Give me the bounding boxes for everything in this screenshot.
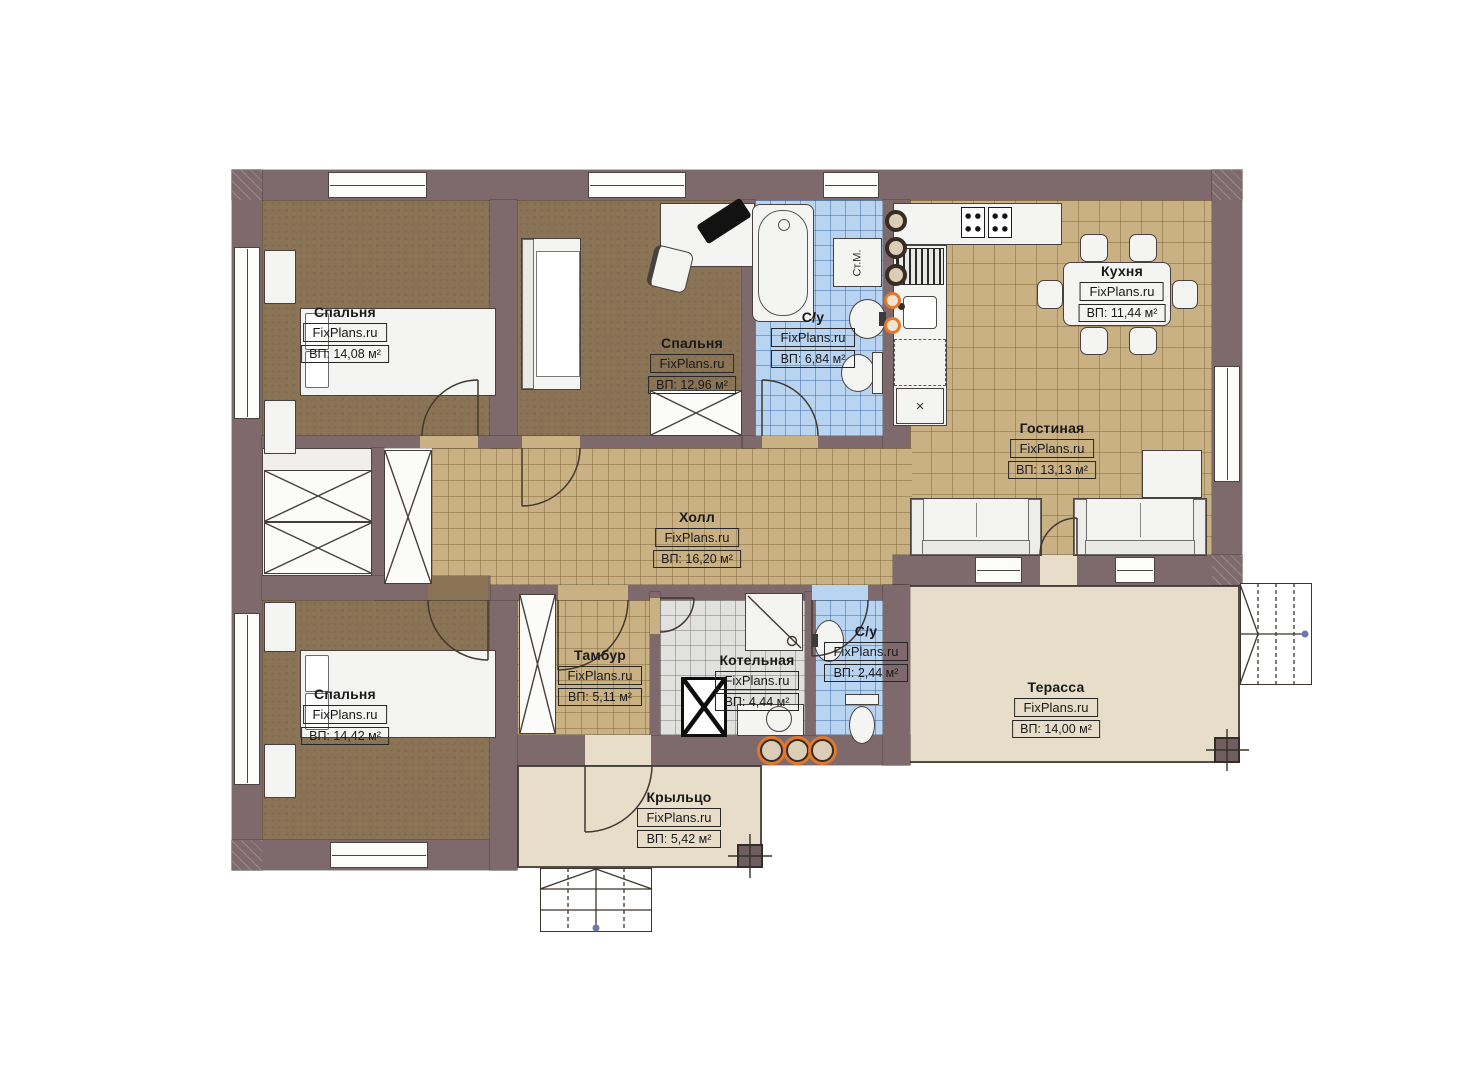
brand-label: FixPlans.ru [558,666,642,685]
chair [1129,234,1157,262]
room-name: Холл [679,509,715,525]
nightstand [264,602,296,652]
door-opening [585,735,651,765]
room-label-terrace: Терасса FixPlans.ru ВП: 14,00 м² [1012,679,1100,738]
room-label-bathroom-2: С/у FixPlans.ru ВП: 2,44 м² [824,623,908,682]
door-opening [650,598,660,634]
nightstand [264,400,296,454]
nightstand [264,250,296,304]
room-area: ВП: 5,11 м² [558,688,642,706]
room-label-boiler-room: Котельная FixPlans.ru ВП: 4,44 м² [715,652,799,711]
room-label-vestibule: Тамбур FixPlans.ru ВП: 5,11 м² [558,647,642,706]
chair [1037,280,1063,309]
room-area: ВП: 4,44 м² [715,693,799,711]
sofa [1073,498,1207,556]
sofa-back [522,239,534,389]
nightstand [264,744,296,798]
room-name: Гостиная [1020,420,1085,436]
stove-burners [961,207,985,238]
window [823,172,879,198]
door-opening [420,436,478,448]
room-label-hall: Холл FixPlans.ru ВП: 16,20 м² [653,509,741,568]
wall-corner-hatch [1212,170,1242,200]
kitchen-cabinet-dashed [894,339,946,386]
floor-plan-canvas: Ст.М. [0,0,1473,1080]
pipe [786,739,809,762]
window [234,247,260,419]
wardrobe [264,522,372,574]
door-opening [812,585,868,600]
riser-pipe [885,264,907,286]
room-area: ВП: 11,44 м² [1079,304,1166,322]
chair [1129,327,1157,355]
sofa-cushion-split [1140,503,1141,537]
sofa-cushion-split [976,503,977,537]
brand-label: FixPlans.ru [1080,282,1164,301]
brand-label: FixPlans.ru [1010,439,1094,458]
window [328,172,427,198]
room-label-bedroom-3: Спальня FixPlans.ru ВП: 14,42 м² [301,686,389,745]
toilet-bowl [849,706,875,744]
brand-label: FixPlans.ru [1014,698,1098,717]
room-name: Котельная [719,652,794,668]
room-name: Спальня [314,686,376,702]
room-label-bathroom-1: С/у FixPlans.ru ВП: 6,84 м² [771,309,855,368]
window [330,842,428,868]
console-table [1142,450,1202,498]
brand-label: FixPlans.ru [650,354,734,373]
brand-label: FixPlans.ru [303,323,387,342]
sofa-seat [536,251,580,377]
window [1214,366,1240,482]
brand-label: FixPlans.ru [655,528,739,547]
room-area: ВП: 14,00 м² [1012,720,1100,738]
room-name: С/у [802,309,824,325]
room-area: ВП: 5,42 м² [637,830,721,848]
room-area: ВП: 14,42 м² [301,727,389,745]
sofa-back [1085,540,1195,555]
sink-tap [812,634,818,647]
window [1115,557,1155,583]
door-opening [762,436,818,448]
pipe [760,739,783,762]
pipe-outlet [884,292,901,309]
chair [1172,280,1198,309]
wall [805,592,815,735]
wall-corner-hatch [1212,555,1242,585]
pipe [811,739,834,762]
kitchen-cabinet [896,388,944,424]
room-area: ВП: 12,96 м² [648,376,736,394]
room-name: С/у [855,623,877,639]
porch-stairs [540,868,652,932]
wardrobe [384,450,432,584]
room-area: ВП: 14,08 м² [301,345,389,363]
toilet-tank [845,694,879,705]
chair [1080,327,1108,355]
sofa [910,498,1042,556]
kitchen-sink [903,296,937,329]
wall-corner-hatch [232,840,262,870]
brand-label: FixPlans.ru [771,328,855,347]
room-name: Тамбур [574,647,626,663]
brand-label: FixPlans.ru [637,808,721,827]
sofa-back [922,540,1030,555]
riser-pipe [885,237,907,259]
room-area: ВП: 2,44 м² [824,664,908,682]
room-name: Крыльцо [646,789,711,805]
riser-pipe [885,210,907,232]
bathtub-drain [778,219,790,231]
toilet-tank [872,352,883,394]
wall [262,436,743,448]
terrace-stairs [1240,583,1312,685]
wardrobe [519,594,556,734]
wardrobe [264,470,372,522]
brand-label: FixPlans.ru [824,642,908,661]
washing-machine-label: Ст.М. [833,238,882,287]
brand-label: FixPlans.ru [715,671,799,690]
room-label-living-room: Гостиная FixPlans.ru ВП: 13,13 м² [1008,420,1096,479]
wardrobe [650,390,742,436]
room-area: ВП: 16,20 м² [653,550,741,568]
room-name: Спальня [661,335,723,351]
room-label-bedroom-2: Спальня FixPlans.ru ВП: 12,96 м² [648,335,736,394]
room-label-porch: Крыльцо FixPlans.ru ВП: 5,42 м² [637,789,721,848]
chair [1080,234,1108,262]
brand-label: FixPlans.ru [303,705,387,724]
wall [372,448,384,576]
wall [517,735,910,765]
pipe-outlet [884,317,901,334]
room-area: ВП: 6,84 м² [771,350,855,368]
room-name: Кухня [1101,263,1143,279]
room-label-bedroom-1: Спальня FixPlans.ru ВП: 14,08 м² [301,304,389,363]
room-name: Терасса [1028,679,1085,695]
window [975,557,1022,583]
window [588,172,686,198]
door-opening [522,436,580,448]
door-opening [1040,555,1077,585]
porch-column [737,844,763,868]
terrace-column [1214,737,1240,763]
shower-cabin [745,593,803,651]
stove-burners [988,207,1012,238]
room-label-kitchen: Кухня FixPlans.ru ВП: 11,44 м² [1079,263,1166,322]
door-opening [558,585,628,600]
window [234,613,260,785]
washing-machine-text: Ст.М. [851,249,863,276]
room-name: Спальня [314,304,376,320]
door-opening [428,576,488,600]
sofa-vertical [521,238,581,390]
room-area: ВП: 13,13 м² [1008,461,1096,479]
wall-corner-hatch [232,170,262,200]
